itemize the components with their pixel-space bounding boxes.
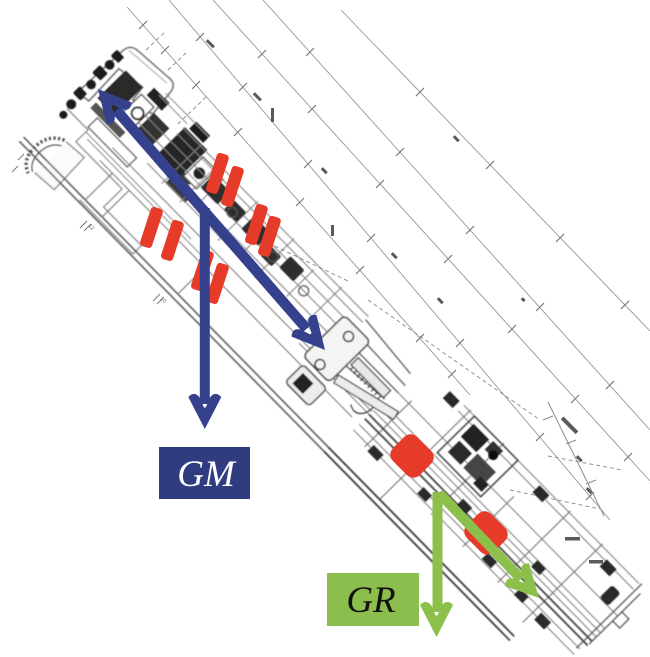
svg-text:GM: GM: [177, 454, 237, 495]
svg-text:GR: GR: [346, 580, 395, 621]
